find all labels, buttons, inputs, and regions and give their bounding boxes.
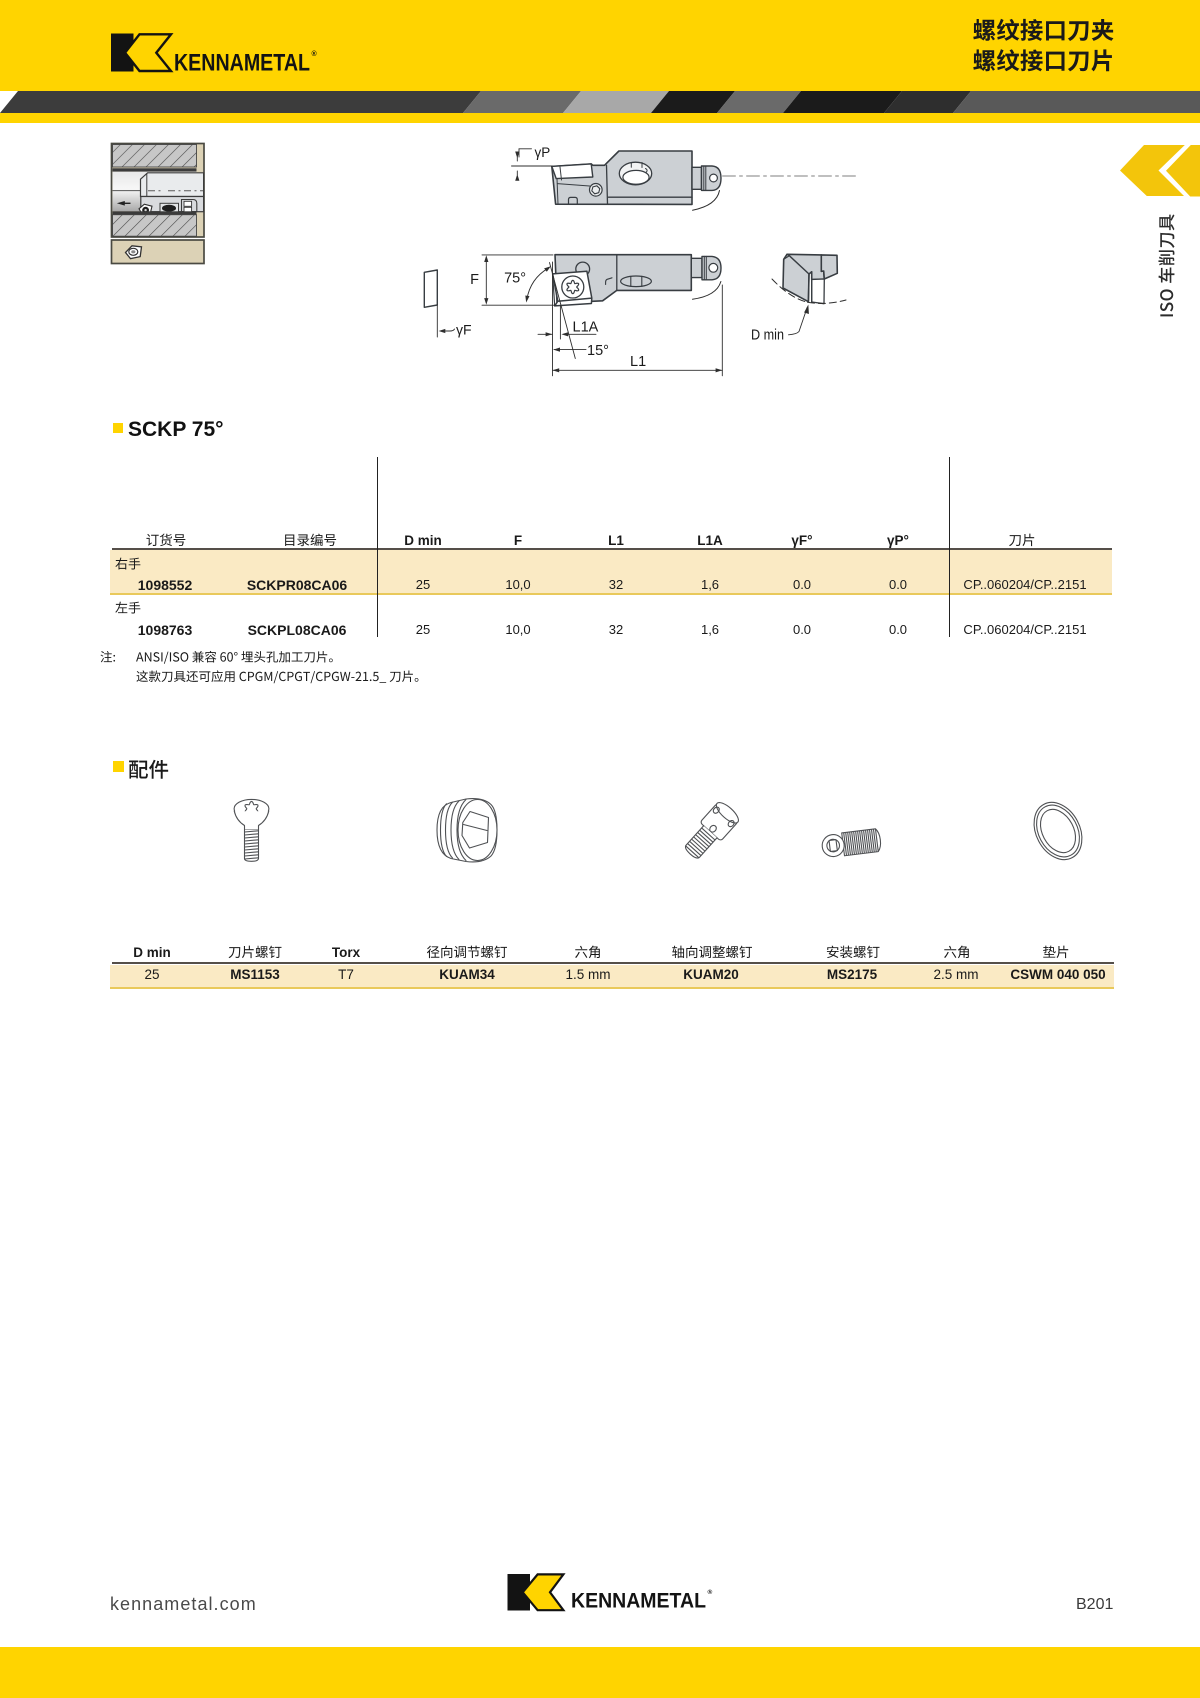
svg-text:®: ® <box>708 1588 713 1596</box>
svg-text:15°: 15° <box>587 343 609 359</box>
svg-text:D min: D min <box>751 328 784 344</box>
svg-text:75°: 75° <box>504 271 526 287</box>
svg-text:KENNAMETAL: KENNAMETAL <box>174 50 310 77</box>
svg-text:L1: L1 <box>630 354 646 370</box>
svg-text:γF: γF <box>456 322 472 338</box>
svg-text:F: F <box>470 272 479 288</box>
svg-text:γP: γP <box>535 145 551 160</box>
svg-text:KENNAMETAL: KENNAMETAL <box>571 1589 706 1613</box>
svg-text:®: ® <box>312 50 318 58</box>
svg-text:L1A: L1A <box>573 319 599 335</box>
